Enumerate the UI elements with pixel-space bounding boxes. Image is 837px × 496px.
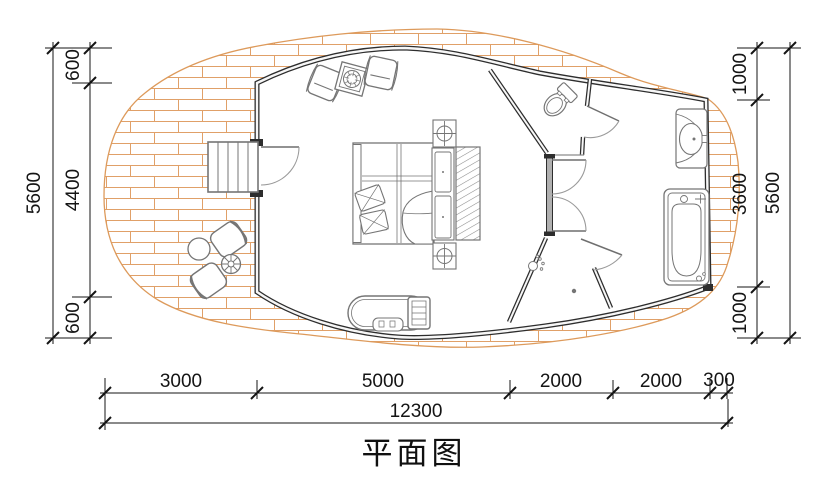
- dim-bottom-1: 3000: [160, 371, 202, 392]
- dim-bottom-total: 12300: [390, 401, 443, 422]
- remote-icon: [373, 318, 403, 331]
- floor-plan-drawing: 5600 600 4400 600 1000 3600 1000 5600 30…: [0, 0, 837, 496]
- dim-left-total: 5600: [24, 172, 45, 214]
- vestibule-wall: [547, 156, 553, 234]
- dim-bottom-4: 2000: [640, 371, 682, 392]
- dim-right-top: 1000: [730, 53, 751, 95]
- outdoor-round-table-icon: [188, 238, 210, 260]
- dim-bottom-3: 2000: [540, 371, 582, 392]
- wardrobe-icon: [456, 147, 480, 240]
- dim-bottom-2: 5000: [362, 371, 404, 392]
- ceiling-lamp-icon: [433, 120, 456, 147]
- dim-right-middle: 3600: [730, 173, 751, 215]
- dim-left-bottom: 600: [63, 302, 84, 334]
- drain-icon: [697, 276, 702, 281]
- tv-icon: [408, 297, 430, 329]
- bathtub-icon: [664, 189, 709, 285]
- drawing-title: 平面图: [362, 436, 467, 471]
- double-bed-icon: [353, 143, 434, 244]
- wall-cap: [544, 232, 555, 237]
- faucet-icon: [681, 196, 688, 203]
- dim-left-top: 600: [63, 49, 84, 81]
- stairs-icon: [208, 142, 258, 192]
- armchair-icon: [363, 55, 400, 91]
- wall-cap: [544, 154, 555, 159]
- dim-right-total: 5600: [763, 172, 784, 214]
- tv-cabinet-icon: [348, 296, 430, 331]
- ceiling-lamp-icon: [433, 243, 456, 269]
- floor-drain-icon: [572, 289, 576, 293]
- dim-right-bottom: 1000: [730, 292, 751, 334]
- parasol-table-icon: [222, 255, 241, 274]
- dim-bottom-5: 300: [703, 370, 735, 391]
- washbasin-icon: [676, 109, 707, 168]
- floor-plan-sheet: 5600 600 4400 600 1000 3600 1000 5600 30…: [0, 0, 837, 496]
- dim-left-middle: 4400: [63, 169, 84, 211]
